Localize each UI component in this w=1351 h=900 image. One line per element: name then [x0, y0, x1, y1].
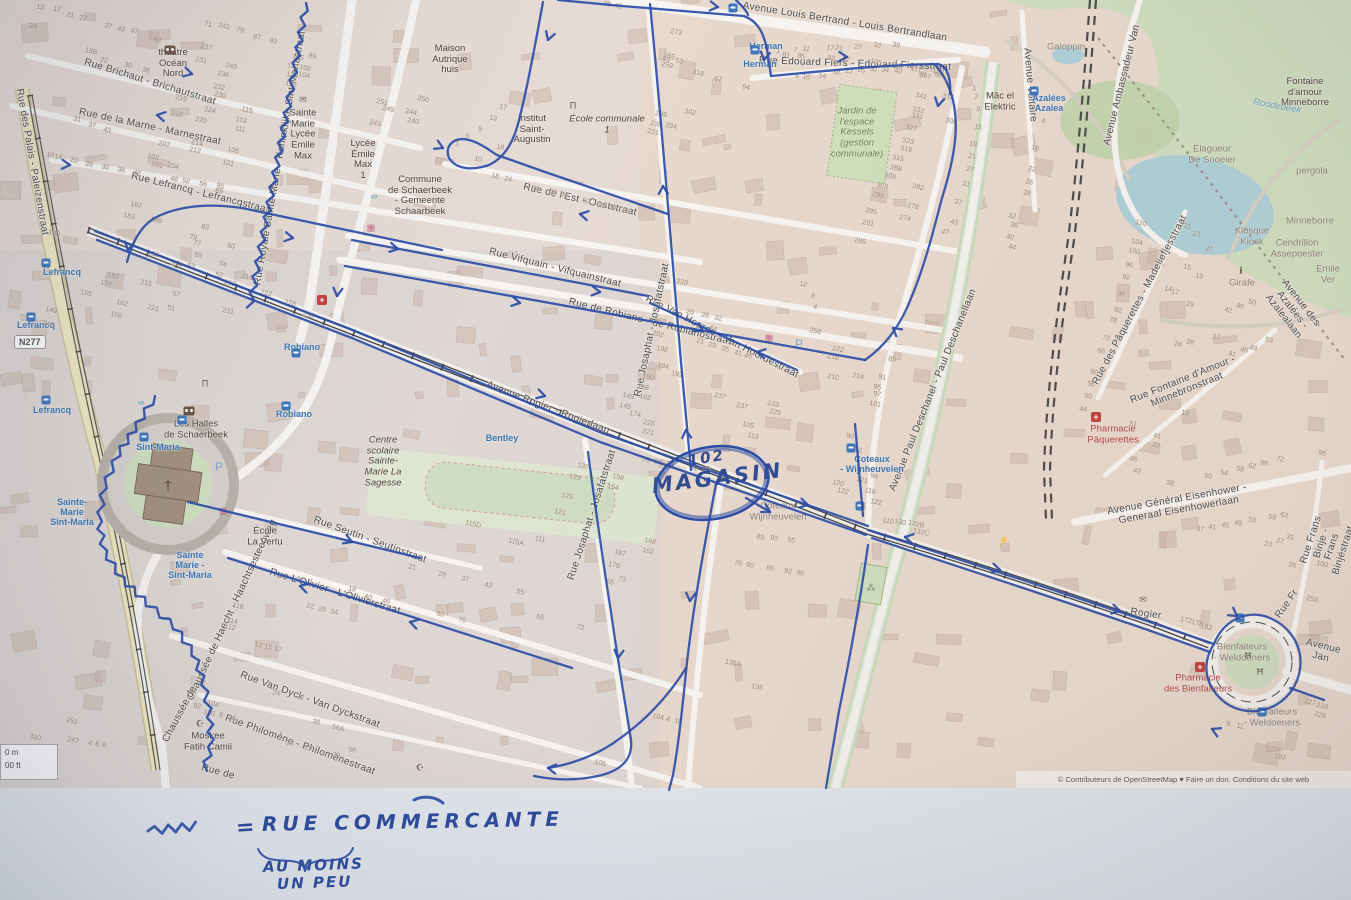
magasin-annotation: MAGASIN [651, 458, 785, 498]
legend-note-line1: AU MOINS [263, 854, 365, 876]
map-photo: Rue Brichaut - BrichautstraatRue de la M… [0, 0, 1351, 900]
legend-note-line2: UN PEU [277, 872, 353, 893]
handwritten-map-annotations: 102 MAGASIN [0, 0, 1351, 788]
magasin-number-annotation: 102 [686, 446, 726, 470]
legend-text: RUE COMMERCANTE [262, 807, 564, 836]
printed-map: Rue Brichaut - BrichautstraatRue de la M… [0, 0, 1351, 788]
legend-equals-sign: = [235, 815, 255, 841]
